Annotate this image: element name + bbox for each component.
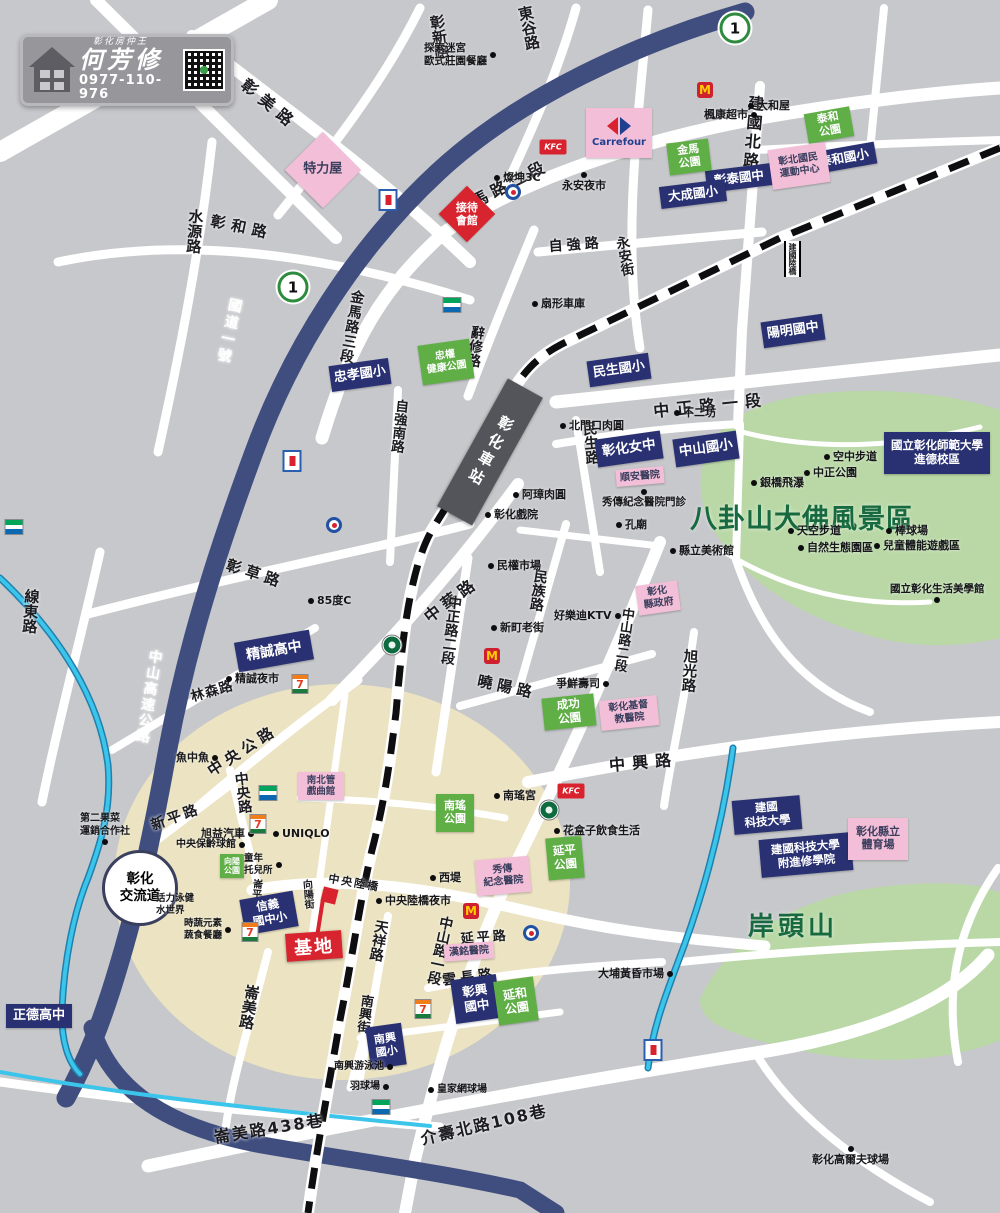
poi-dot [886,528,892,534]
road-label: 旭光路 [677,648,701,693]
poi-label: 第二果菜 運銷合作社 [80,813,130,845]
poi-text: 扇形車庫 [541,297,585,311]
landmark-box: 建國科技大學 附進修學院 [759,832,854,878]
poi-label: 南興游泳池 [334,1061,393,1074]
road-label: 自強路 [548,232,603,256]
poi-text: 民權市場 [497,559,541,573]
poi-label: 銀橋飛瀑 [751,476,804,490]
landmark-box: 忠孝國小 [328,358,391,392]
landmark-box: 泰和 公園 [804,106,855,144]
poi-label: 時蔬元素 蔬食餐廳 [184,918,231,942]
brand-logo-icon [523,925,539,941]
road-label: 曉陽路 [476,670,539,703]
poi-dot [376,898,382,904]
poi-dot [824,454,830,460]
poi-text: 南興游泳池 [334,1061,384,1074]
poi-label: 燦坤3C [494,171,541,185]
seven-eleven-icon: 7 [415,999,432,1019]
poi-text: 中央陸橋夜市 [385,894,451,908]
poi-label: 中央保齡球館 [176,839,245,852]
poi-label: 彰化戲院 [485,508,538,522]
starbucks-icon [540,801,559,820]
familymart-icon [259,785,278,801]
landmark-box: 彰化基督 教醫院 [599,695,660,731]
poi-dot [494,793,500,799]
poi-dot [751,480,757,486]
poi-text: 彰化高爾夫球場 [812,1153,889,1167]
poi-dot [934,597,940,603]
poi-text: 第二果菜 運銷合作社 [80,813,130,838]
poi-text: 童年 托兒所 [244,853,273,877]
poi-label: 棒球場 [886,524,928,538]
landmark-box: 南北管 戲曲館 [298,772,344,800]
landmark-box: 正德高中 [6,1004,72,1028]
road-label: 民族路 [525,568,551,612]
poi-dot [674,410,680,416]
poi-label: 國立彰化生活美學館 [890,583,985,603]
road-label: 水源路 [183,208,207,254]
poi-dot [751,112,757,118]
landmark-box: 國立彰化師範大學 進德校區 [884,432,990,474]
landmark-box: 順安醫院 [615,466,664,487]
poi-label: 童年 托兒所 [244,853,282,877]
poi-label: 扇形車庫 [532,297,585,311]
poi-dot [560,423,566,429]
poi-text: 大和屋 [757,99,790,113]
landmark-box: 金馬 公園 [666,139,712,176]
road-label: 中央路 [230,771,255,815]
poi-dot [430,875,436,881]
poi-dot [581,172,587,178]
agent-phone: 0977-110-976 [79,74,183,103]
poi-dot [226,676,232,682]
poi-text: 中央保齡球館 [176,839,236,852]
familymart-icon [5,519,24,535]
poi-dot [615,613,621,619]
poi-text: 好樂迪KTV [554,609,612,623]
landmark-box: 民生國小 [586,353,651,387]
road-label: 國道一號 [212,296,246,367]
agent-name: 何芳修 [79,47,183,73]
road-label: 自強南路 [385,398,411,454]
landmark-box-label: 特力屋 [303,162,342,178]
landmark-box: 秀傳 紀念醫院 [475,856,532,897]
agent-logo-card: 彰化房仲王 何芳修 0977-110-976 [20,34,234,106]
poi-label: 楓康超市 [704,108,757,122]
poi-label: 精誠夜市 [226,672,279,686]
road-label: 彰美路 [237,72,305,135]
map-canvas: 彰化車站 彰化 交流道 基地 彰新路東谷路彰美路金馬路二段水源路彰和路國道一號金… [0,0,1000,1213]
road-label: 向陽街 [298,879,316,910]
road-label: 崙美路 [235,983,263,1031]
poi-text: 皇家網球場 [437,1084,487,1097]
poi-label: 天空步道 [788,524,841,538]
poi-dot [491,625,497,631]
poi-label: 西堤 [430,871,461,885]
poi-text: 縣立美術館 [679,544,734,558]
poi-dot [513,492,519,498]
poi-dot [212,755,218,761]
site-marker: 基地 [285,930,343,962]
poi-dot [804,470,810,476]
poi-dot [387,1064,393,1070]
landmark-box: 精誠高中 [234,630,314,673]
poi-dot [670,548,676,554]
poi-dot [383,1084,389,1090]
poi-label: 孔廟 [616,518,647,532]
poi-label: 中央陸橋夜市 [376,894,451,908]
poi-dot [276,862,282,868]
poi-text: 爭鮮壽司 [556,677,600,691]
poi-label: 不二坊 [674,406,716,420]
poi-dot [102,839,108,845]
poi-text: 燦坤3C [503,171,541,185]
seven-eleven-icon: 7 [250,814,267,834]
landmark-box: 彰化縣立 體育場 [848,818,908,860]
poi-text: 西堤 [439,871,461,885]
poi-dot [490,52,496,58]
landmark-box: 建國 科技大學 [732,795,803,835]
poi-text: 大埔黃昏市場 [598,967,664,981]
poi-label: 花盒子飲食生活 [554,824,640,838]
landmark-box-label: 接待 會館 [456,201,478,227]
poi-label: 空中步道 [824,450,877,464]
poi-dot [532,301,538,307]
poi-text: 中正公園 [813,466,857,480]
poi-dot [494,175,500,181]
poi-text: 永安夜市 [562,179,606,193]
poi-dot [874,543,880,549]
landmark-box: 陽明國中 [760,314,825,348]
poi-text: 新町老街 [500,621,544,635]
poi-label: 縣立美術館 [670,544,734,558]
mcdonalds-icon: M [463,903,479,919]
poi-dot [485,512,491,518]
road-label: 天祥路 [365,918,392,963]
poi-label: 中正公園 [804,466,857,480]
poi-text: 棒球場 [895,524,928,538]
poi-dot [848,1146,854,1152]
poi-label: 好樂迪KTV [554,609,621,623]
gas-station-icon [283,450,302,472]
poi-dot [273,831,279,837]
qr-code [183,49,225,91]
poi-label: 魚中魚 [176,751,218,765]
area-label: 岸頭山 [748,906,838,943]
poi-dot [798,545,804,551]
poi-label: 85度C [308,594,351,608]
poi-text: 北門口肉圓 [569,419,624,433]
map-label-layer: 彰新路東谷路彰美路金馬路二段水源路彰和路國道一號金馬路三段辭修路自強路永安街建國… [0,0,1000,1213]
poi-text: 彰化戲院 [494,508,538,522]
landmark-box: 向陽 公園 [220,854,244,878]
carrefour-wordmark: Carrefour [592,137,646,149]
poi-label: 皇家網球場 [428,1084,487,1097]
landmark-box: 彰化女中 [594,431,663,468]
poi-label: 北門口肉圓 [560,419,624,433]
landmark-box: 彰北國民 運動中心 [767,142,830,190]
brand-logo-icon [326,517,342,533]
landmark-box: 大成國小 [659,179,727,209]
poi-label: 自然生態園區 [798,541,873,555]
poi-text: 兒童體能遊戲區 [883,539,960,553]
road-label: 永安街 [610,235,637,278]
road-label: 彰和路 [209,210,275,244]
familymart-icon [372,1099,391,1115]
poi-label: 秀傳紀念醫院門診 [602,489,686,509]
kfc-icon: KFC [558,784,585,799]
road-label: 新平路 [148,799,203,835]
road-label: 中山高速公路 [131,648,166,746]
landmark-box: 南瑤 公園 [436,794,474,832]
road-label: 東谷路 [514,4,544,52]
poi-dot [641,489,647,495]
poi-text: 秀傳紀念醫院門診 [602,496,686,509]
poi-dot [616,522,622,528]
landmark-box: 中山國小 [672,431,739,468]
landmark-box: 特力屋 [285,132,361,208]
road-label: 介壽北路108巷 [418,1097,549,1149]
poi-text: 85度C [317,594,351,608]
poi-text: 花盒子飲食生活 [563,824,640,838]
poi-dot [239,842,245,848]
gas-station-icon [644,1039,663,1061]
poi-label: 新町老街 [491,621,544,635]
poi-label: 羽球場 [350,1081,389,1094]
poi-dot [603,681,609,687]
poi-label: 南瑤宮 [494,789,536,803]
poi-text: 楓康超市 [704,108,748,122]
poi-text: 羽球場 [350,1081,380,1094]
poi-label: 民權市場 [488,559,541,573]
poi-dot [225,927,231,933]
brand-logo-icon [505,184,521,200]
poi-label: 阿璋肉圓 [513,488,566,502]
poi-text: 南瑤宮 [503,789,536,803]
route-1-badge: 1 [720,13,751,44]
poi-text: 空中步道 [833,450,877,464]
landmark-box: 成功 公園 [541,693,596,730]
poi-label: 活力泳健 水世界 [156,893,194,917]
poi-dot [428,1087,434,1093]
poi-label: 大埔黃昏市場 [598,967,673,981]
poi-label: 探索迷宮 歐式莊園餐廳 [424,42,496,68]
poi-text: 國立彰化生活美學館 [890,583,985,596]
landmark-box: 彰化 縣政府 [635,580,681,616]
route-1-badge: 1 [278,272,309,303]
poi-text: 阿璋肉圓 [522,488,566,502]
landmark-box: 忠權 健康公園 [417,339,474,386]
poi-text: 天空步道 [797,524,841,538]
road-label: 崙美路438巷 [212,1107,326,1148]
poi-dot [667,971,673,977]
poi-dot [788,528,794,534]
landmark-box: 漢銘醫院 [443,941,494,961]
poi-label: 永安夜市 [562,172,606,193]
road-label: 中興路 [608,746,679,776]
landmark-box: 延平 公園 [545,836,585,881]
poi-text: 魚中魚 [176,751,209,765]
road-label: 線東路 [19,588,43,634]
poi-text: UNIQLO [282,827,330,841]
gas-station-icon [379,189,398,211]
road-label: 彰草路 [224,554,288,593]
kfc-icon: KFC [540,140,567,155]
poi-dot [554,828,560,834]
poi-text: 精誠夜市 [235,672,279,686]
road-label: 建國陸橋 [784,241,801,277]
poi-text: 銀橋飛瀑 [760,476,804,490]
poi-text: 探索迷宮 歐式莊園餐廳 [424,42,487,68]
house-icon [29,47,75,93]
poi-dot [308,598,314,604]
seven-eleven-icon: 7 [242,922,259,942]
poi-text: 活力泳健 水世界 [156,893,194,917]
seven-eleven-icon: 7 [292,674,309,694]
poi-text: 時蔬元素 蔬食餐廳 [184,918,222,942]
poi-text: 不二坊 [683,406,716,420]
poi-label: 兒童體能遊戲區 [874,539,960,553]
poi-label: 彰化高爾夫球場 [812,1146,889,1167]
poi-dot [488,563,494,569]
mcdonalds-icon: M [697,82,713,98]
poi-text: 自然生態園區 [807,541,873,555]
carrefour-logo-icon [607,117,631,135]
poi-label: 爭鮮壽司 [556,677,609,691]
landmark-box: Carrefour [586,108,652,158]
mcdonalds-icon: M [484,648,500,664]
landmark-box: 延和 公園 [493,976,539,1025]
familymart-icon [443,297,462,313]
road-label: 金馬路三段 [335,288,368,365]
poi-label: UNIQLO [273,827,330,841]
starbucks-icon [383,636,402,655]
poi-text: 孔廟 [625,518,647,532]
